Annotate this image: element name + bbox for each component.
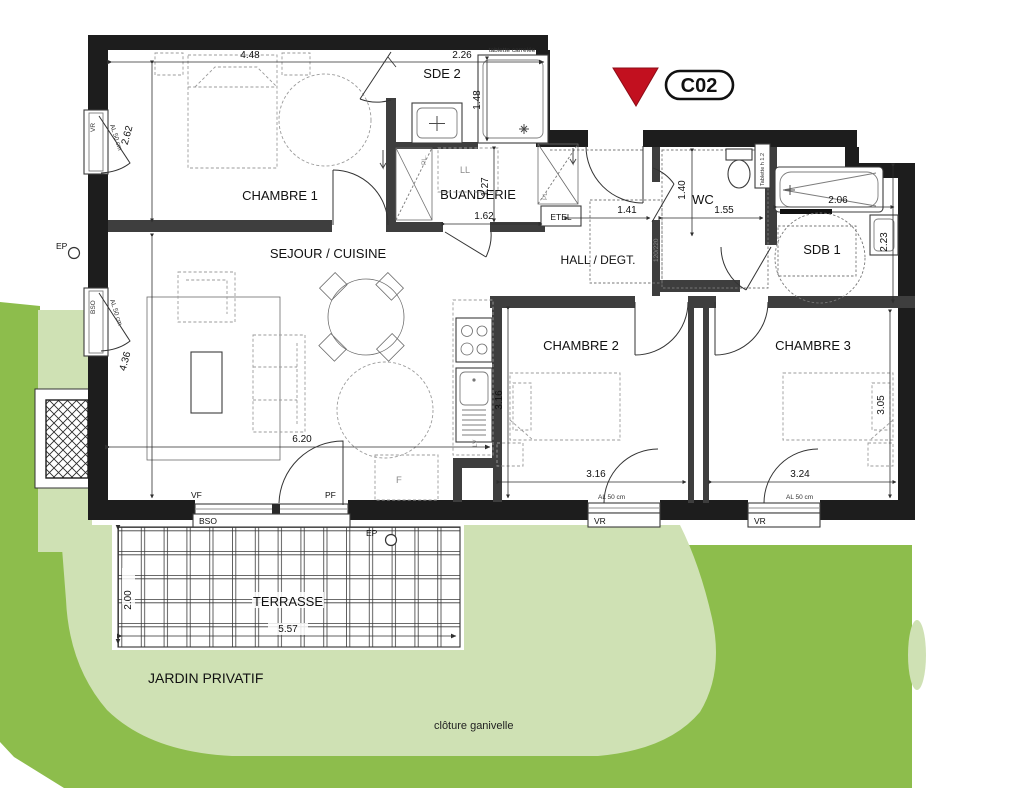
window-bso-left-label: BSO [90,300,97,314]
dim-chambre3-w: 3.24 [790,469,810,480]
sdb1-label: SDB 1 [803,242,841,257]
dim-chambre2-h: 3.16 [494,390,505,410]
window-chambre3-vr-label: VR [754,516,766,526]
chambre2-label: CHAMBRE 2 [543,338,619,353]
chambre1-label: CHAMBRE 1 [242,188,318,203]
fridge-label: F [396,475,402,486]
kitchen-sink-drain-icon [472,378,475,381]
bso-strip-label: BSO [199,516,217,526]
dim-chambre3-h: 3.05 [876,395,887,415]
window-chambre2-vr-label: VR [594,516,606,526]
dim-chambre1-w: 4.48 [240,50,260,61]
terrasse-width-dim: 5.57 [278,624,298,635]
chambre3-label: CHAMBRE 3 [775,338,851,353]
toilet-bowl [728,160,750,188]
hatched-box [46,400,88,478]
dim-wc-w: 1.55 [714,205,734,216]
ep-terrasse-icon [386,535,397,546]
dishwasher-label: LV [472,439,479,447]
garden-light-blob [908,620,926,690]
dim-sdb1-w: 2.06 [828,195,848,206]
sde2-label: SDE 2 [423,66,461,81]
window-bso-left [84,288,108,356]
window-chambre2-al: AL 50 cm [598,494,625,501]
washing-machine-label: LL [460,165,470,175]
window-vr-left-label: VR [90,123,97,132]
ep-left-label: EP [56,241,68,251]
dim-buanderie-w: 1.62 [474,211,494,222]
sejour-label: SEJOUR / CUISINE [270,246,387,261]
ep-terrasse-label: EP [366,528,378,538]
dim-buanderie-h: 1.27 [480,177,491,197]
dim-sejour-w: 6.20 [292,434,312,445]
ep-left-icon [69,248,80,259]
exterior-hatched-box [35,389,97,488]
window-vr-left [84,110,108,174]
stove [456,318,492,362]
wc-shelf-label: Tablette h 1.2 [760,153,766,186]
dim-sde2-h: 1.48 [472,90,483,110]
wc-label: WC [692,192,714,207]
window-chambre3-al: AL 50 cm [786,494,813,501]
toilet-tank [726,149,752,160]
unit-code: C02 [681,75,718,97]
hall-door-size: 120/220 [653,238,660,262]
tablette-carrelee-label: tablette carrelée [489,47,536,54]
dim-sdb1-h: 2.23 [879,232,890,252]
dim-chambre2-w: 3.16 [586,469,606,480]
etel-label: ETEL [550,212,572,222]
floorplan-page: JARDIN PRIVATIF clôture ganivelle TERRAS… [0,0,1023,800]
shower-sde2 [478,55,548,143]
terrasse-depth-dim: 2.00 [123,590,134,610]
cloture-label: clôture ganivelle [434,720,514,732]
closet-hall-label: PL. [542,190,549,200]
window-sejour-mullion [272,504,280,514]
jardin-label: JARDIN PRIVATIF [148,670,263,686]
terrasse: TERRASSE 5.57 2.00 EP [112,521,464,650]
dim-wc-h: 1.40 [677,180,688,200]
floorplan-svg: JARDIN PRIVATIF clôture ganivelle TERRAS… [0,0,1023,800]
bathtub-apron [780,209,832,214]
ep-left: EP [56,241,80,259]
vf-label: VF [191,490,202,500]
dim-hall-w: 1.41 [617,205,637,216]
buanderie-label: BUANDERIE [440,187,516,202]
dim-sde2-w: 2.26 [452,50,472,61]
coffee-table [191,352,222,413]
hall-label: HALL / DEGT. [561,253,636,267]
closet-buanderie-label: PL. [421,155,428,165]
pf-label: PF [325,490,336,500]
terrasse-label: TERRASSE [253,594,323,609]
